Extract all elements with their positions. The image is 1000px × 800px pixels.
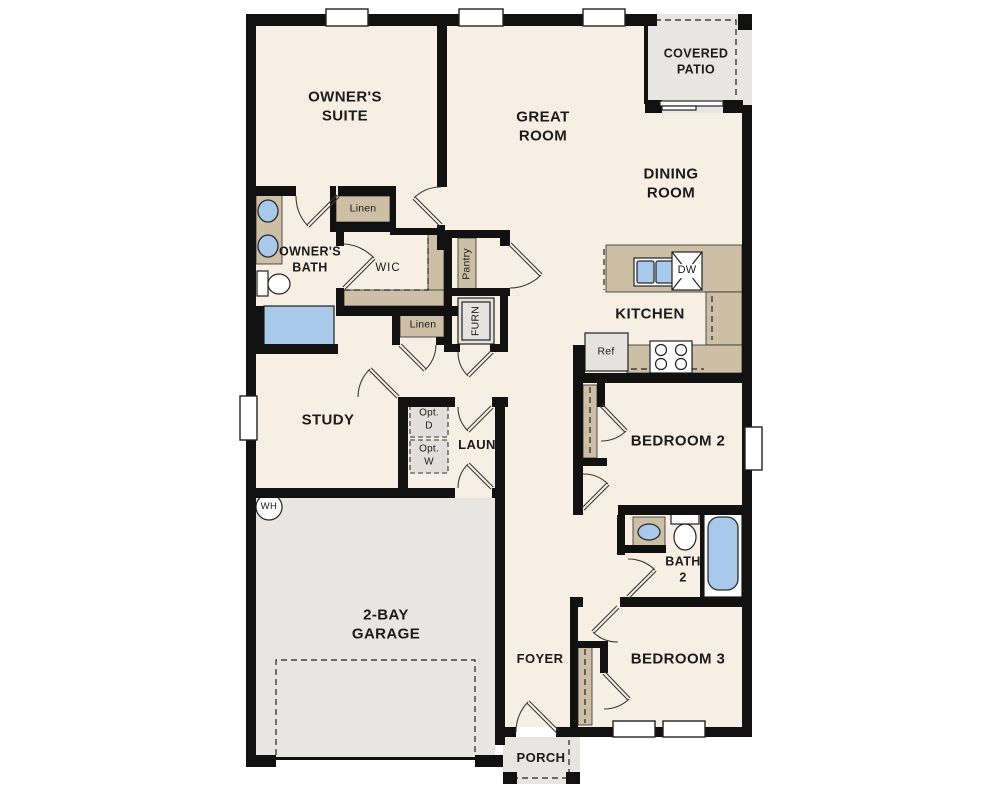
window-icon xyxy=(613,721,655,737)
label-linen-closet-1: Linen xyxy=(350,202,377,215)
window-icon xyxy=(583,9,625,26)
label-furnace: FURN xyxy=(469,306,482,336)
room-label-study: STUDY xyxy=(302,412,355,431)
room-label-garage: 2-BAY GARAGE xyxy=(352,606,420,644)
floor-plan-drawing xyxy=(0,0,1000,800)
room-label-laundry: LAUN xyxy=(458,437,496,453)
bath2-toilet-icon xyxy=(671,511,699,550)
window-icon xyxy=(326,9,368,26)
label-linen-closet-2: Linen xyxy=(410,318,437,331)
wic-shelf-bottom xyxy=(344,290,444,306)
room-label-owners-suite: OWNER'S SUITE xyxy=(308,88,382,126)
window-icon xyxy=(459,9,503,26)
window-icon xyxy=(745,427,762,470)
room-label-bedroom3: BEDROOM 3 xyxy=(631,651,725,670)
shower-icon xyxy=(264,306,334,346)
label-optional-dryer: Opt. D xyxy=(419,408,439,433)
room-label-kitchen: KITCHEN xyxy=(615,306,684,325)
label-refrigerator: Ref xyxy=(598,345,615,358)
label-water-heater: WH xyxy=(261,501,278,513)
bathtub-icon xyxy=(704,512,742,597)
room-label-dining-room: DINING ROOM xyxy=(644,165,699,203)
room-label-bedroom2: BEDROOM 2 xyxy=(631,433,725,452)
room-label-wic: WIC xyxy=(375,261,400,275)
room-label-great-room: GREAT ROOM xyxy=(516,108,569,146)
room-label-covered-patio: COVERED PATIO xyxy=(664,46,729,77)
room-label-porch: PORCH xyxy=(517,750,566,766)
label-dishwasher: DW xyxy=(676,264,699,278)
room-label-owners-bath: OWNER'S BATH xyxy=(279,244,341,275)
bath2-sink-icon xyxy=(638,524,660,540)
room-label-bath2: BATH 2 xyxy=(665,554,700,585)
label-optional-washer: Opt. W xyxy=(419,444,439,469)
kitchen-sink-icon xyxy=(634,258,674,286)
stove-icon xyxy=(650,341,692,373)
floor-plan: OWNER'S SUITE GREAT ROOM DINING ROOM KIT… xyxy=(0,0,1000,800)
window-icon xyxy=(240,396,257,440)
label-pantry: Pantry xyxy=(460,248,473,280)
window-icon xyxy=(663,721,705,737)
room-label-foyer: FOYER xyxy=(517,651,564,667)
